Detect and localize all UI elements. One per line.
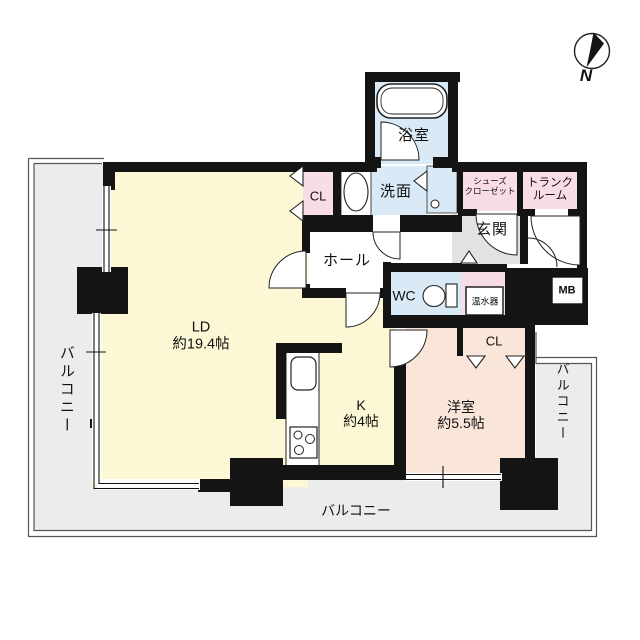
floor-plan-svg [0,0,640,640]
washing-machine-pan-icon [431,200,439,208]
kitchen-sink-icon [291,357,316,390]
meter-box [552,277,583,304]
floor-plan: 浴室 洗面 CL シューズ クローゼット トランク ルーム 玄関 ホール WC … [0,0,640,640]
hall-floor [308,230,383,288]
water-heater-box [466,287,503,315]
western-room-floor [406,328,525,475]
north-compass-icon [575,33,610,69]
bathtub-icon [377,84,447,118]
toilet-icon [423,284,457,307]
washbasin-icon [344,173,368,211]
kitchen-counter [286,351,319,469]
